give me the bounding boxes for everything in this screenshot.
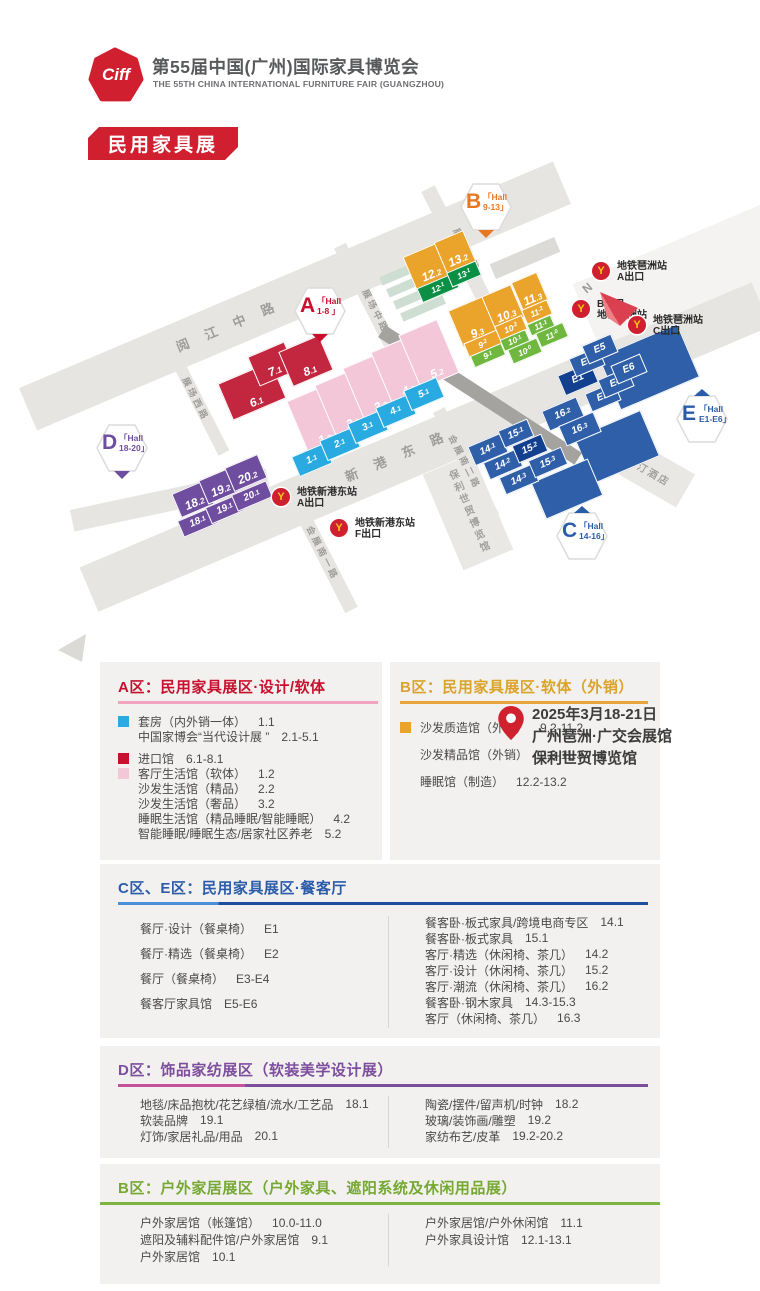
legend-a-items: 套房（内外销一体）1.1中国家博会“当代设计展 ”2.1-5.1进口馆6.1-8… [118,714,350,841]
legend-item-name: 餐客卧·钢木家具 [425,994,513,1011]
map-road-label: 展场西路 [179,375,212,424]
legend-item-code: 6.1-8.1 [186,752,223,766]
legend-color-swatch [118,768,129,779]
legend-item: 遮阳及辅料配件馆/户外家居馆9.1 [120,1231,328,1248]
hall-badge-b: B「Hall 9-13」 [458,174,514,240]
badge-letter: A [300,294,315,318]
badge-letter: C [562,519,577,543]
legend-item-name: 遮阳及辅料配件馆/户外家居馆 [140,1231,299,1248]
legend-outdoor-divider [388,1214,389,1266]
legend-item-code: 19.2 [528,1113,551,1127]
legend-item-code: 14.2 [585,947,608,961]
legend-item: 餐厅（餐桌椅）E3-E4 [120,966,279,991]
legend-item-code: 12.1-13.1 [521,1233,572,1247]
legend-item: 餐客卧·板式家具/跨境电商专区14.1 [405,914,624,930]
badge-hall-range: 「Hall E1-E6」 [699,405,731,424]
legend-item-code: 11.1 [560,1216,582,1230]
legend-d-underline [118,1084,648,1087]
legend-item-name: 客厅（休闲椅、茶几） [425,1010,545,1027]
legend-item-code: E5-E6 [224,997,257,1011]
left-road-arrow-icon [58,634,88,664]
legend-item: 户外家具设计馆12.1-13.1 [405,1231,583,1248]
fair-subtitle: THE 55TH CHINA INTERNATIONAL FURNITURE F… [153,79,444,89]
legend-item-name: 地毯/床品抱枕/花艺绿植/流水/工艺品 [140,1096,333,1113]
legend-item-name: 家纺布艺/皮革 [425,1128,500,1145]
legend-color-swatch [118,753,129,764]
legend-outdoor-underline [100,1202,660,1205]
legend-ce-right-items: 餐客卧·板式家具/跨境电商专区14.1餐客卧·板式家具15.1客厅·精选（休闲椅… [405,914,624,1026]
legend-item: 地毯/床品抱枕/花艺绿植/流水/工艺品18.1 [120,1096,369,1112]
hall-badge-d: D「Hall 18-20」 [94,415,150,481]
map-shape-road [490,237,561,279]
legend-item-code: 4.2 [333,812,350,826]
legend-item-code: 20.1 [255,1129,278,1143]
legend-item: 餐厅·精选（餐桌椅）E2 [120,941,279,966]
legend-item-name: 餐厅（餐桌椅） [140,970,224,987]
legend-ce-underline [118,902,648,905]
legend-item: 进口馆6.1-8.1 [118,751,350,766]
metro-logo-icon: Y [572,300,590,318]
legend-item-code: 12.2-13.2 [516,775,567,789]
legend-item-name: 沙发精品馆（外销） [420,746,528,763]
badge-hall-range: 「Hall 18-20」 [119,434,149,453]
legend-item: 灯饰/家居礼品/用品20.1 [120,1128,369,1144]
legend-item-code: 18.1 [345,1097,368,1111]
legend-panel-ce: C区、E区：民用家具展区·餐客厅 餐厅·设计（餐桌椅）E1餐厅·精选（餐桌椅）E… [100,864,660,1038]
legend-item-code: 19.2-20.2 [512,1129,563,1143]
ciff-logo-text: Ciff [88,47,144,103]
legend-item-code: E3-E4 [236,972,269,986]
legend-outdoor-title: B区：户外家居展区（户外家具、遮阳系统及休闲用品展） [118,1177,517,1198]
legend-item-code: 10.0-11.0 [272,1216,322,1230]
hall-badge-a: A「Hall 1-8 」 [292,278,348,344]
legend-a-title: A区：民用家具展区·设计/软体 [118,676,326,697]
legend-item-name: 中国家博会“当代设计展 ” [138,728,269,745]
legend-item: 套房（内外销一体）1.1 [118,714,350,729]
legend-item-code: 5.2 [325,827,342,841]
legend-item-code: 2.1-5.1 [281,730,318,744]
legend-item-code: 18.2 [555,1097,578,1111]
legend-item-name: 户外家具设计馆 [425,1231,509,1248]
legend-ce-title: C区、E区：民用家具展区·餐客厅 [118,877,347,898]
legend-item: 沙发生活馆（精品）2.2 [118,781,350,796]
metro-logo-icon: Y [272,488,290,506]
badge-hall-range: 「Hall 9-13」 [483,193,509,212]
hall-badge-e: E「Hall E1-E6」 [674,386,730,452]
legend-item: 智能睡眠/睡眠生态/居家社区养老5.2 [118,826,350,841]
exhibition-map: N 2025年3月18-21日 广州琶洲·广交会展馆 保利世贸博览馆 阅 江 中… [0,140,760,660]
legend-item: 软装品牌19.1 [120,1112,369,1128]
legend-item: 客厅（休闲椅、茶几）16.3 [405,1010,624,1026]
legend-item: 睡眠生活馆（精品睡眠/智能睡眠）4.2 [118,811,350,826]
legend-item-code: 10.1 [212,1250,235,1264]
metro-exit-label: 地铁琶洲站 C出口 [653,315,703,337]
legend-item-code: 16.2 [585,979,608,993]
legend-item-name: 灯饰/家居礼品/用品 [140,1128,243,1145]
legend-item-name: 软装品牌 [140,1112,188,1129]
legend-item: 餐厅·设计（餐桌椅）E1 [120,916,279,941]
legend-item-name: 睡眠馆（制造） [420,773,504,790]
metro-logo-icon: Y [592,262,610,280]
legend-item-code: 3.2 [258,797,275,811]
badge-letter: E [682,402,696,426]
location-pin-icon [498,706,524,740]
legend-item-code: 16.3 [557,1011,580,1025]
legend-item: 户外家居馆（帐篷馆）10.0-11.0 [120,1214,328,1231]
legend-item-name: 户外家居馆/户外休闲馆 [425,1214,548,1231]
legend-item-name: 玻璃/装饰画/雕塑 [425,1112,516,1129]
legend-item-code: 14.3-15.3 [525,995,576,1009]
legend-item: 陶瓷/摆件/留声机/时钟18.2 [405,1096,578,1112]
legend-d-divider [388,1096,389,1148]
legend-item-name: 客厅·精选（休闲椅、茶几） [425,946,573,963]
venue-name-2: 保利世贸博览馆 [532,748,672,770]
legend-item-code: 1.1 [258,715,275,729]
metro-exit-label: 地铁新港东站 F出口 [355,518,415,540]
legend-color-swatch [400,722,411,733]
legend-item-code: 15.1 [525,931,548,945]
legend-color-swatch [118,716,129,727]
legend-item: 睡眠馆（制造）12.2-13.2 [400,768,583,795]
legend-item-name: 户外家居馆 [140,1248,200,1265]
legend-ce-divider [388,916,389,1028]
legend-item-name: 餐厅·设计（餐桌椅） [140,920,252,937]
legend-outdoor-right-items: 户外家居馆/户外休闲馆11.1户外家具设计馆12.1-13.1 [405,1214,583,1248]
legend-item-code: 9.1 [311,1233,328,1247]
legend-item: 户外家居馆/户外休闲馆11.1 [405,1214,583,1231]
legend-b-title: B区：民用家具展区·软体（外销） [400,676,634,697]
legend-item-name: 陶瓷/摆件/留声机/时钟 [425,1096,543,1113]
badge-hall-range: 「Hall 1-8 」 [317,297,341,316]
hall-badge-c: C「Hall 14-16」 [554,503,610,569]
legend-item: 家纺布艺/皮革19.2-20.2 [405,1128,578,1144]
legend-item: 客厅·潮流（休闲椅、茶几）16.2 [405,978,624,994]
metro-logo-icon: Y [330,519,348,537]
legend-d-left-items: 地毯/床品抱枕/花艺绿植/流水/工艺品18.1软装品牌19.1灯饰/家居礼品/用… [120,1096,369,1144]
metro-exit-label: 地铁新港东站 A出口 [297,487,357,509]
venue-dates: 2025年3月18-21日 [532,704,672,726]
badge-letter: D [102,431,117,455]
legend-item-code: E2 [264,947,279,961]
fair-title: 第55届中国(广州)国际家具博览会 [152,54,419,79]
legend-item-name: 智能睡眠/睡眠生态/居家社区养老 [138,825,313,842]
badge-letter: B [466,190,481,214]
ciff-fair-map-page: Ciff 第55届中国(广州)国际家具博览会 THE 55TH CHINA IN… [0,0,760,1291]
legend-item-name: 客厅·潮流（休闲椅、茶几） [425,978,573,995]
legend-panel-a: A区：民用家具展区·设计/软体 套房（内外销一体）1.1中国家博会“当代设计展 … [100,662,382,860]
legend-item: 中国家博会“当代设计展 ”2.1-5.1 [118,729,350,744]
legend-item-code: E1 [264,922,279,936]
legend-item: 客厅生活馆（软体）1.2 [118,766,350,781]
legend-item-code: 1.2 [258,767,275,781]
legend-a-underline [118,701,378,704]
legend-item: 餐客卧·板式家具15.1 [405,930,624,946]
venue-name-1: 广州琶洲·广交会展馆 [532,726,672,748]
legend-item-code: 2.2 [258,782,275,796]
legend-d-title: D区：饰品家纺展区（软装美学设计展） [118,1059,393,1080]
badge-hall-range: 「Hall 14-16」 [579,522,609,541]
legend-item-name: 餐客卧·板式家具/跨境电商专区 [425,914,588,931]
legend-item: 沙发生活馆（奢品）3.2 [118,796,350,811]
legend-item-name: 餐客卧·板式家具 [425,930,513,947]
legend-item-name: 户外家居馆（帐篷馆） [140,1214,260,1231]
legend-item: 客厅·设计（休闲椅、茶几）15.2 [405,962,624,978]
compass-arrow-icon [592,286,640,330]
legend-item: 餐客厅家具馆E5-E6 [120,991,279,1016]
legend-item-code: 14.1 [600,915,623,929]
legend-item-name: 客厅·设计（休闲椅、茶几） [425,962,573,979]
legend-item: 餐客卧·钢木家具14.3-15.3 [405,994,624,1010]
legend-item: 玻璃/装饰画/雕塑19.2 [405,1112,578,1128]
metro-exit-label: 地铁琶洲站 A出口 [617,261,667,283]
legend-d-right-items: 陶瓷/摆件/留声机/时钟18.2玻璃/装饰画/雕塑19.2家纺布艺/皮革19.2… [405,1096,578,1144]
legend-item: 客厅·精选（休闲椅、茶几）14.2 [405,946,624,962]
legend-panel-outdoor: B区：户外家居展区（户外家具、遮阳系统及休闲用品展） 户外家居馆（帐篷馆）10.… [100,1164,660,1284]
legend-outdoor-left-items: 户外家居馆（帐篷馆）10.0-11.0遮阳及辅料配件馆/户外家居馆9.1户外家居… [120,1214,328,1265]
legend-ce-left-items: 餐厅·设计（餐桌椅）E1餐厅·精选（餐桌椅）E2餐厅（餐桌椅）E3-E4餐客厅家… [120,916,279,1016]
legend-item-code: 19.1 [200,1113,223,1127]
legend-panel-d: D区：饰品家纺展区（软装美学设计展） 地毯/床品抱枕/花艺绿植/流水/工艺品18… [100,1046,660,1158]
legend-item: 户外家居馆10.1 [120,1248,328,1265]
legend-item-code: 15.2 [585,963,608,977]
legend-item-name: 餐厅·精选（餐桌椅） [140,945,252,962]
legend-item-name: 餐客厅家具馆 [140,995,212,1012]
